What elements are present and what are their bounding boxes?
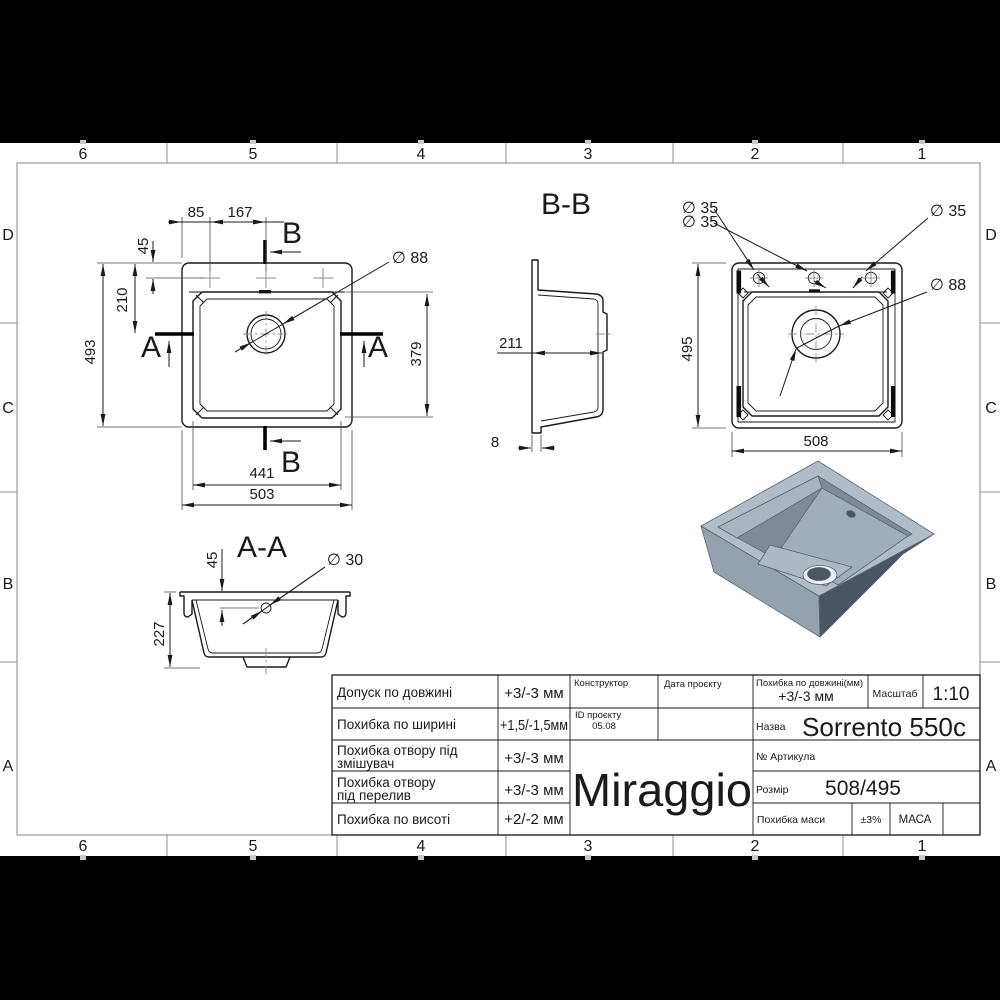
dim-45: 45 (135, 238, 152, 255)
row-label: A (986, 758, 997, 775)
overflow-mark (809, 289, 820, 292)
col-label: 5 (249, 838, 258, 855)
row-label: A (3, 758, 14, 775)
row-label: C (985, 400, 997, 417)
constructor-label: Конструктор (574, 678, 628, 689)
dim-441: 441 (249, 465, 274, 482)
technical-drawing-sheet: 6 5 4 3 2 1 6 5 4 3 2 1 D C B A D C B A (0, 0, 1000, 1000)
scale-label: Масштаб (873, 688, 918, 700)
col-label: 2 (751, 146, 760, 163)
section-a-letter-left: A (141, 331, 161, 364)
tolerance-value: +3/-3 мм (504, 750, 563, 767)
section-b-letter-bottom: B (281, 446, 301, 479)
section-a-letter-right: A (368, 331, 388, 364)
brand-logo: Miraggio (572, 764, 752, 816)
tolerance-label: під перелив (337, 788, 411, 803)
dim-45: 45 (204, 552, 221, 569)
col-label: 6 (79, 838, 88, 855)
row-label: C (2, 400, 14, 417)
dim-503: 503 (249, 486, 274, 503)
size-label: Розмір (756, 784, 789, 796)
col-label: 1 (918, 838, 927, 855)
drawing-canvas: 6 5 4 3 2 1 6 5 4 3 2 1 D C B A D C B A (0, 0, 1000, 1000)
col-label: 3 (584, 146, 593, 163)
mass-label: МАСА (899, 814, 932, 826)
length-tolerance-value: +3/-3 мм (778, 688, 833, 704)
col-label: 2 (751, 838, 760, 855)
tolerance-label: Допуск по довжині (337, 685, 452, 700)
tolerance-label: Похибка по ширині (337, 717, 456, 732)
hole-diameter-label: ∅ 35 (930, 203, 966, 220)
drain-diameter-label: ∅ 88 (392, 250, 428, 267)
dim-227: 227 (151, 621, 168, 646)
col-label: 1 (918, 146, 927, 163)
tolerance-label: змішувач (337, 756, 394, 771)
dim-167: 167 (227, 204, 252, 221)
project-id-value: 05.08 (592, 721, 616, 732)
tolerance-label: Похибка по висоті (337, 812, 450, 827)
project-id-label: ID проєкту (575, 710, 621, 721)
col-label: 4 (417, 146, 426, 163)
tolerance-value: +2/-2 мм (504, 811, 563, 828)
dim-508: 508 (803, 433, 828, 450)
section-b-letter-top: B (282, 217, 302, 250)
product-name: Sorrento 550c (802, 712, 966, 742)
hole-diameter-label: ∅ 35 (682, 214, 718, 231)
size-value: 508/495 (825, 777, 901, 800)
name-label: Назва (756, 721, 786, 733)
col-label: 5 (249, 146, 258, 163)
dim-8: 8 (491, 434, 499, 451)
dim-210: 210 (114, 287, 131, 312)
scale-value: 1:10 (933, 684, 970, 705)
overflow-mark (259, 290, 271, 293)
tolerance-value: +1,5/-1,5мм (500, 717, 568, 734)
col-label: 4 (417, 838, 426, 855)
project-date-label: Дата проєкту (664, 679, 722, 690)
col-label: 3 (584, 838, 593, 855)
dim-211: 211 (499, 335, 523, 352)
tolerance-value: +3/-3 мм (504, 782, 563, 799)
section-aa-title: A-A (237, 531, 287, 564)
row-label: D (985, 227, 997, 244)
mass-tolerance-label: Похибка маси (757, 814, 825, 826)
drain-diameter-label: ∅ 88 (930, 277, 966, 294)
article-label: № Артикула (756, 751, 815, 763)
col-label: 6 (79, 146, 88, 163)
row-label: B (986, 576, 997, 593)
dim-85: 85 (188, 204, 205, 221)
tolerance-value: +3/-3 мм (504, 685, 563, 702)
mass-tolerance-value: ±3% (861, 814, 882, 826)
row-label: D (2, 227, 14, 244)
dim-493: 493 (82, 339, 99, 364)
section-bb-title: B-B (541, 188, 591, 221)
dim-379: 379 (408, 341, 425, 366)
mixer-hole-diameter-label: ∅ 30 (327, 552, 363, 569)
dim-495: 495 (679, 336, 696, 361)
row-label: B (3, 576, 14, 593)
